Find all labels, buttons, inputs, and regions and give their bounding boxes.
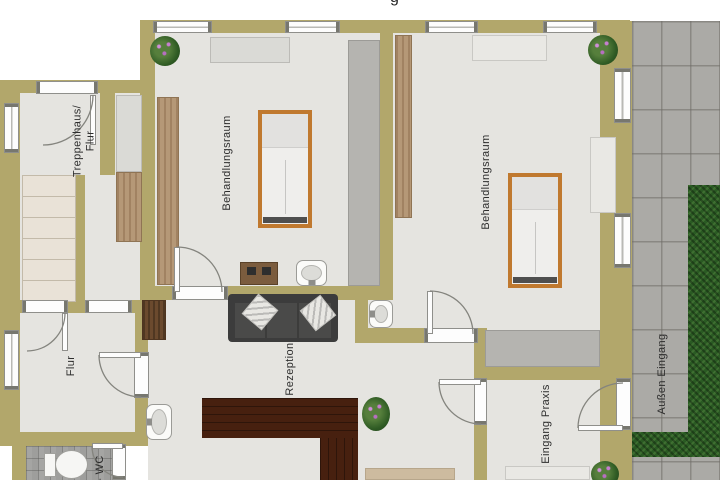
hedge-vertical	[688, 185, 720, 457]
window	[4, 330, 19, 390]
window	[425, 21, 478, 33]
table-foot-rail	[513, 277, 557, 283]
wall-wc-west	[12, 445, 26, 480]
table-crease	[285, 160, 286, 214]
toilet	[44, 450, 88, 478]
door-frame-flur-rezeption	[134, 352, 149, 398]
cabinet-left-room-top	[210, 37, 290, 63]
wood-cabinet-rezeption	[142, 300, 166, 340]
door-frame-main-entrance	[616, 378, 631, 430]
floor-plan: g	[0, 0, 720, 480]
door-leaf	[427, 291, 433, 334]
cabinet-right-room-top	[472, 35, 547, 61]
wall-corridor-stub	[100, 93, 115, 175]
door-frame-wc	[112, 444, 126, 480]
corridor-wood-cabinet	[116, 172, 142, 242]
page-title-fragment: g	[390, 0, 399, 7]
room-label-flur: Flur	[65, 356, 77, 377]
door-leaf	[99, 352, 141, 358]
plant-entrance	[591, 461, 619, 480]
floor-behandlungsraum-right	[393, 33, 600, 328]
plant-top-right	[588, 35, 618, 65]
treatment-table-right	[508, 173, 562, 288]
table-foot-rail	[263, 217, 307, 223]
door-leaf	[439, 379, 481, 385]
outdoor-label-aussen-eingang: Außen Eingang	[656, 333, 668, 414]
corridor-cabinet	[116, 95, 142, 172]
wall-stair-stringer	[76, 175, 85, 302]
treatment-table-left	[258, 110, 312, 228]
room-label-rezeption: Rezeption	[284, 342, 296, 395]
sink-left-room	[296, 260, 327, 286]
wall-between-rooms	[380, 20, 393, 287]
floor-flur	[20, 313, 135, 432]
window	[614, 68, 631, 123]
window	[614, 213, 631, 268]
room-label-gaeste-wc: Gäste - WC	[94, 455, 106, 480]
table-crease	[535, 222, 536, 274]
room-label-behandlungsraum-left: Behandlungsraum	[221, 115, 233, 210]
room-label-treppenhaus-flur: Treppenhaus/ Flur	[71, 105, 96, 177]
window	[153, 21, 212, 33]
waiting-bench	[365, 468, 455, 480]
wardrobe-right-room	[485, 330, 600, 367]
door-leaf	[174, 247, 180, 292]
label-line: Treppenhaus/	[71, 105, 84, 177]
wall-behandlungsraum-left-west	[140, 20, 155, 300]
door-frame-behandlungsraum-left	[172, 286, 228, 300]
staircase	[22, 175, 76, 302]
table-head-section	[262, 114, 308, 148]
door-frame-treppenhaus-top	[36, 81, 98, 94]
door-leaf	[62, 313, 68, 351]
hedge-bottom	[632, 432, 688, 457]
window	[543, 21, 597, 33]
sink-nook	[369, 300, 393, 328]
wood-counter-right-room	[395, 35, 412, 218]
reception-desk-top	[202, 398, 358, 438]
door-frame-treppenhaus-flur-b	[85, 300, 132, 313]
label-line: Flur	[84, 105, 97, 177]
window	[285, 21, 340, 33]
door-leaf	[92, 443, 123, 449]
sideboard-left-room	[240, 262, 278, 285]
room-label-behandlungsraum-right: Behandlungsraum	[480, 134, 492, 229]
cabinet-eingang	[505, 466, 590, 480]
plant-desk	[362, 397, 390, 431]
door-frame-treppenhaus-flur-a	[22, 300, 68, 313]
door-frame-eingang-rezeption	[474, 378, 487, 425]
room-label-eingang-praxis: Eingang Praxis	[540, 384, 552, 464]
sink-rezeption	[146, 404, 172, 440]
cabinet-right-room-east	[590, 137, 616, 213]
reception-desk-leg	[320, 438, 358, 480]
plant-top-left	[150, 36, 180, 66]
window	[4, 103, 19, 153]
toilet-bowl	[55, 450, 88, 479]
door-leaf	[578, 425, 623, 431]
wardrobe-left-room	[348, 40, 380, 286]
table-head-section	[512, 177, 558, 210]
wall-behandlungsraum-right-south	[487, 367, 630, 380]
